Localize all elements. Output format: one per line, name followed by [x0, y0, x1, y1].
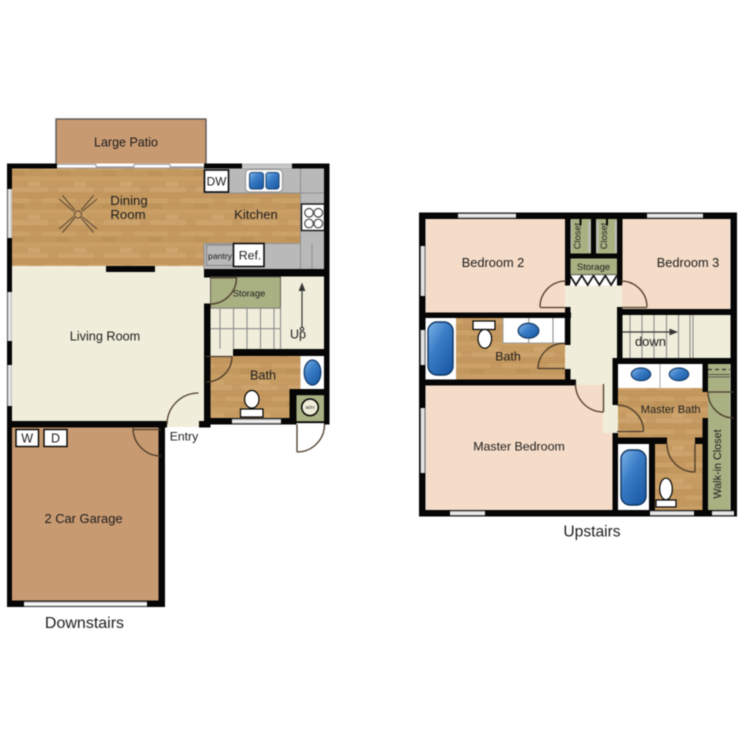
svg-text:Kitchen: Kitchen — [234, 207, 278, 222]
svg-text:Entry: Entry — [170, 430, 199, 444]
svg-text:Storage: Storage — [577, 262, 610, 273]
svg-text:Ref.: Ref. — [239, 249, 262, 263]
svg-text:Closet: Closet — [599, 222, 609, 249]
svg-text:2 Car Garage: 2 Car Garage — [44, 511, 122, 526]
svg-text:Living Room: Living Room — [70, 330, 141, 344]
svg-text:Walk-in Closet: Walk-in Closet — [712, 429, 724, 498]
svg-text:D: D — [51, 432, 60, 446]
svg-text:Downstairs: Downstairs — [45, 615, 124, 632]
svg-text:DW: DW — [207, 175, 228, 189]
svg-text:Bedroom 3: Bedroom 3 — [657, 255, 720, 270]
svg-text:Master Bedroom: Master Bedroom — [473, 440, 565, 454]
svg-text:pantry: pantry — [208, 251, 233, 261]
svg-text:Large Patio: Large Patio — [94, 136, 158, 150]
svg-text:Bedroom 2: Bedroom 2 — [462, 255, 525, 270]
svg-text:Dining: Dining — [110, 193, 147, 208]
svg-text:Storage: Storage — [233, 289, 266, 299]
svg-text:W: W — [21, 432, 33, 446]
svg-text:Master Bath: Master Bath — [641, 404, 701, 416]
svg-text:Closet: Closet — [573, 222, 583, 249]
svg-text:Upstairs: Upstairs — [563, 524, 620, 541]
svg-text:Room: Room — [110, 207, 145, 222]
svg-text:W/H: W/H — [306, 405, 315, 410]
svg-text:down: down — [635, 334, 666, 349]
svg-text:Bath: Bath — [495, 350, 521, 364]
svg-text:Up: Up — [290, 328, 306, 342]
svg-text:Bath: Bath — [250, 369, 276, 383]
